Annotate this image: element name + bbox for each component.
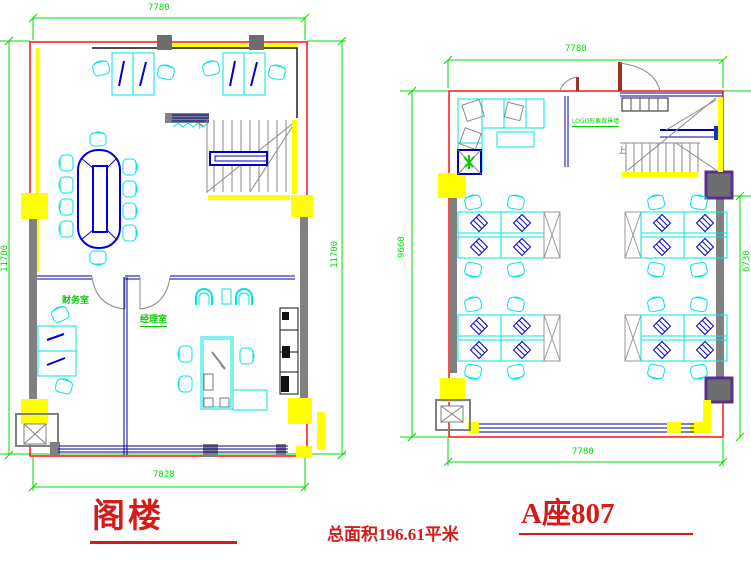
dim-left-plan-top: 7780 <box>148 4 170 13</box>
right-plan-title: A座807 <box>521 500 614 529</box>
plant-box <box>458 150 481 174</box>
dim-right-plan-left: 9660 <box>398 236 407 258</box>
finance-room-furniture <box>38 304 76 395</box>
total-area-label: 总面积196.61平米 <box>327 526 459 543</box>
left-plan-desks <box>91 53 286 95</box>
left-plan-stairs <box>165 113 297 200</box>
right-elevator-box <box>436 400 470 430</box>
dim-left-plan-right: 11700 <box>331 241 340 268</box>
dim-right-plan-bottom: 7780 <box>572 448 594 457</box>
dim-left-plan-left: 11700 <box>1 245 10 272</box>
stair-direction-right-plan: 上 <box>618 147 626 155</box>
dim-right-plan-right: 6730 <box>743 250 751 272</box>
room-label-manager: 经理室 <box>140 316 167 327</box>
manager-room-furniture <box>178 289 267 410</box>
left-plan-title: 阁楼 <box>92 499 164 532</box>
logo-wall-label: LOGO形象背景墙 <box>572 119 619 127</box>
dim-right-plan-top: 7780 <box>565 45 587 54</box>
cabinet <box>280 308 298 394</box>
cad-floorplan-canvas[interactable]: 7780 11700 11700 7828 7780 9660 6730 778… <box>0 0 751 562</box>
floorplan-drawing <box>0 0 751 562</box>
right-title-underline <box>519 533 693 535</box>
dim-left-plan-bottom: 7828 <box>153 471 175 480</box>
right-plan-stairs <box>620 93 723 177</box>
left-plan <box>0 14 346 491</box>
left-title-underline <box>90 541 237 544</box>
conference-table <box>59 132 137 265</box>
left-plan-walls <box>21 35 325 458</box>
stair-direction-left-plan: 下 <box>196 122 204 130</box>
workstation-clusters <box>458 193 727 380</box>
room-label-finance: 财务室 <box>62 297 89 306</box>
